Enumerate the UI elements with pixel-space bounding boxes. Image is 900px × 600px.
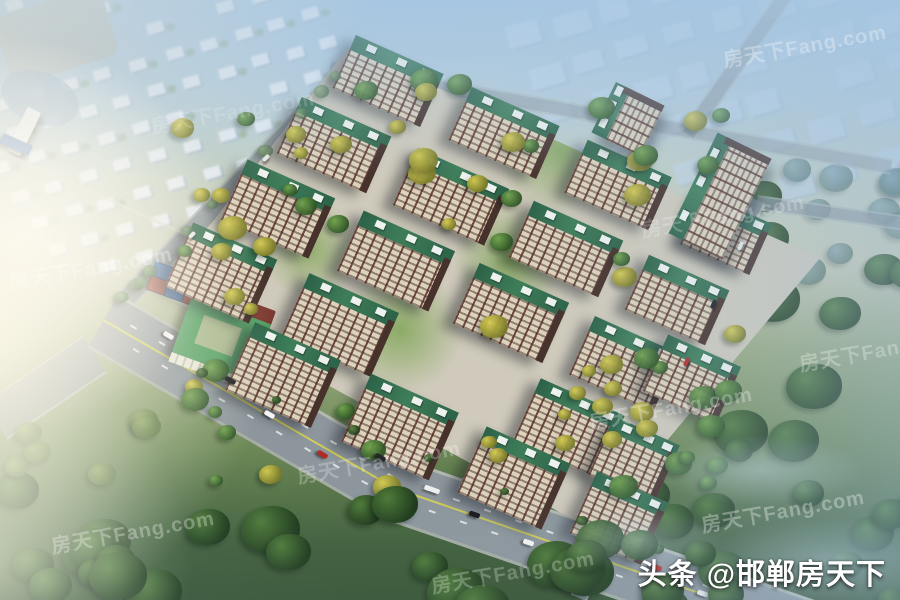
tree bbox=[29, 568, 72, 600]
tree bbox=[24, 441, 51, 463]
tree bbox=[5, 457, 29, 477]
tree bbox=[266, 534, 310, 570]
tree bbox=[89, 552, 148, 600]
tree bbox=[0, 472, 39, 509]
tree bbox=[132, 415, 160, 438]
tree bbox=[372, 486, 418, 523]
tree bbox=[186, 509, 230, 545]
tree bbox=[566, 540, 607, 574]
aerial-render-scene: 房天下Fang.com房天下Fang.com房天下Fang.com房天下Fang… bbox=[0, 0, 900, 600]
tree bbox=[88, 463, 115, 485]
caption-byline: 头条 @邯郸房天下 bbox=[638, 551, 886, 593]
tree-belt-bottom bbox=[0, 0, 900, 600]
